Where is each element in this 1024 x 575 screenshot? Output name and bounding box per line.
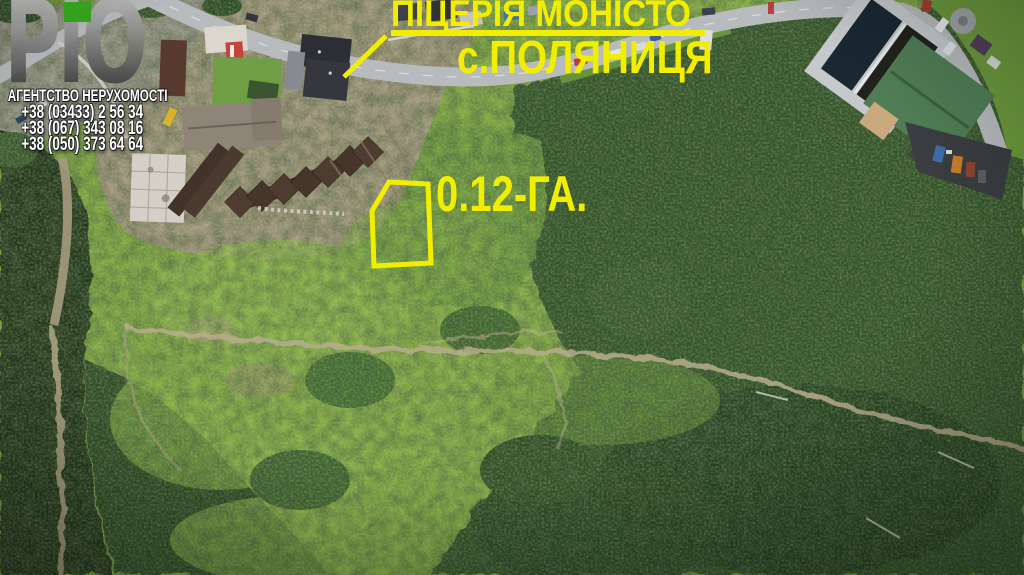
plot-area-label: 0.12-ГА. bbox=[436, 165, 587, 223]
phone-number-3: +38 (050) 373 64 64 bbox=[21, 137, 167, 153]
aerial-photo: РіО АГЕНТСТВО НЕРУХОМОСТІ +38 (03433) 2 … bbox=[0, 0, 1024, 575]
agency-contacts: АГЕНТСТВО НЕРУХОМОСТІ +38 (03433) 2 56 3… bbox=[0, 88, 168, 152]
location-village: с.ПОЛЯНИЦЯ bbox=[457, 30, 713, 84]
logo-accent-square bbox=[64, 2, 91, 22]
